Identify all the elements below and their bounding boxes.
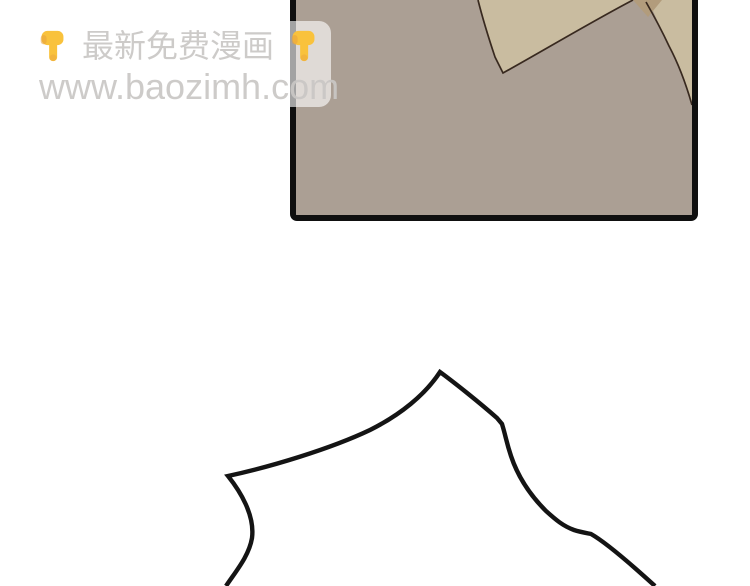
silhouette-outline-path xyxy=(226,372,655,586)
point-down-icon xyxy=(39,30,66,62)
watermark-slogan-row: 最新免费漫画 xyxy=(39,26,317,66)
watermark-url: www.baozimh.com xyxy=(39,69,317,105)
comic-page: { "page": { "background": "#ffffff" }, "… xyxy=(0,0,750,586)
watermark-slogan: 最新免费漫画 xyxy=(82,30,274,62)
comic-panel xyxy=(290,0,698,221)
watermark-badge: 最新免费漫画 www.baozimh.com xyxy=(25,21,331,107)
panel-artwork xyxy=(296,0,692,215)
silhouette-line-art xyxy=(0,340,750,586)
point-down-icon xyxy=(290,30,317,62)
